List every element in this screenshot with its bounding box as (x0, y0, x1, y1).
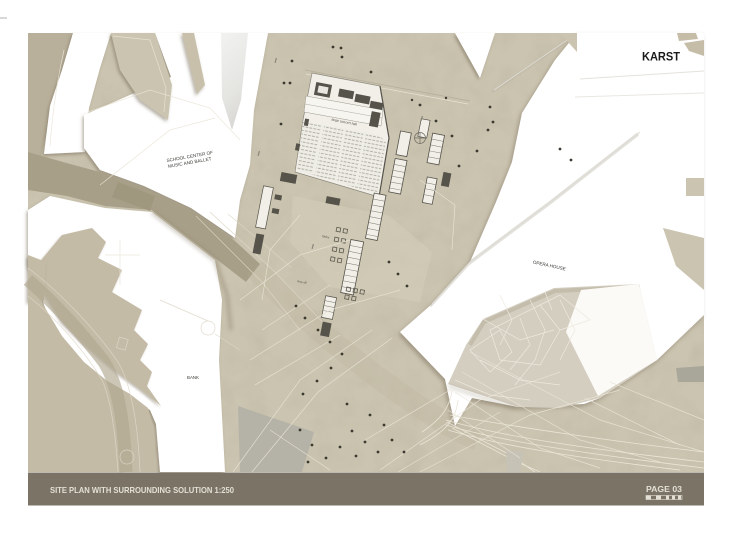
svg-text:PAGE 03: PAGE 03 (646, 485, 683, 494)
svg-text:BANK: BANK (187, 375, 199, 380)
svg-text:KARST: KARST (642, 52, 680, 64)
svg-text:SITE PLAN WITH SURROUNDING SOL: SITE PLAN WITH SURROUNDING SOLUTION 1:25… (50, 486, 234, 495)
